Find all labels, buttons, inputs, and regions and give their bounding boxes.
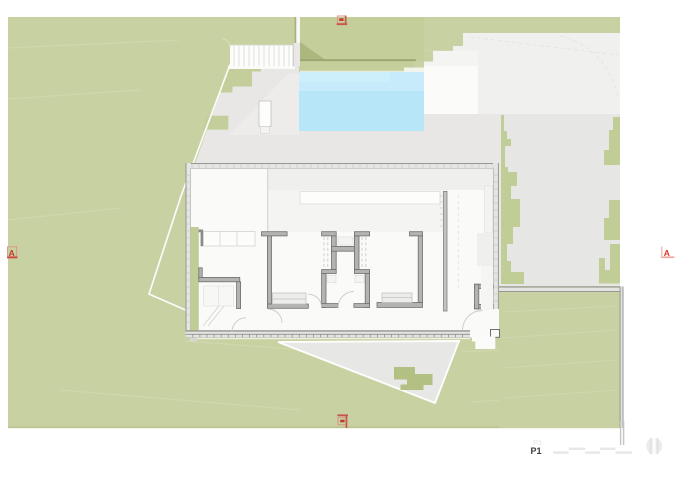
svg-text:P1: P1 bbox=[533, 438, 542, 447]
svg-text:A: A bbox=[9, 248, 15, 258]
svg-text:P1: P1 bbox=[531, 446, 542, 456]
